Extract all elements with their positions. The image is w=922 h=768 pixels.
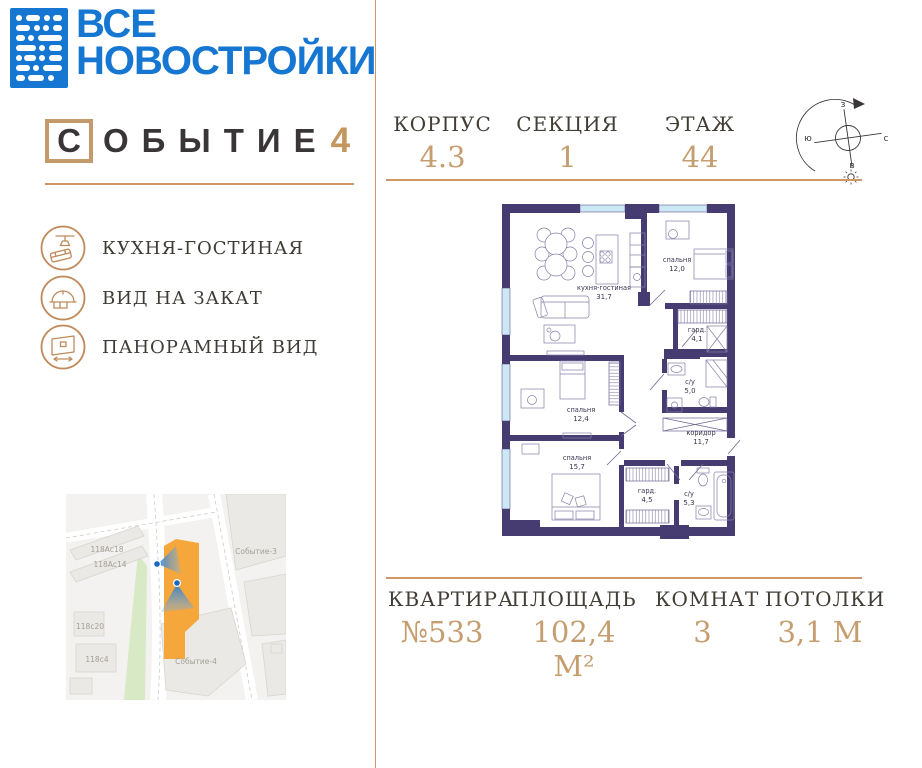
brand-logo-line1: ВСЕ: [76, 6, 376, 43]
room-area-kitchen-living: 31,7: [596, 293, 612, 301]
stat-area: ПЛОЩАДЬ 102,4 М²: [508, 587, 640, 683]
project-underline: [45, 183, 354, 185]
sunset-view-icon: [40, 275, 86, 321]
stat-korpus: КОРПУС 4.3: [390, 112, 495, 174]
compass-west: з: [841, 100, 846, 110]
kitchen-living-icon: [40, 225, 86, 271]
compass-east: в: [849, 161, 854, 171]
map-label-118s4: 118с4: [85, 655, 108, 664]
stat-etazh: ЭТАЖ 44: [650, 112, 750, 174]
room-name-bedroom-3: спальня: [563, 454, 591, 462]
project-first-letter: С: [57, 122, 81, 160]
compass-north: с: [884, 134, 889, 144]
stat-apartment-label: КВАРТИРА: [388, 587, 496, 611]
room-name-kitchen-living: кухня-гостиная: [577, 284, 631, 292]
room-area-wardrobe-1: 4,1: [691, 335, 702, 343]
stat-sekcia-label: СЕКЦИЯ: [515, 112, 620, 136]
stat-korpus-value: 4.3: [390, 140, 495, 174]
room-area-bedroom-3: 15,7: [569, 463, 585, 471]
feature-sunset-view-label: ВИД НА ЗАКАТ: [102, 288, 263, 309]
map-label-118s20: 118с20: [76, 622, 104, 631]
map-label-sobytie3: Событие-3: [235, 547, 277, 556]
brand-logo-text: ВСЕ НОВОСТРОЙКИ: [76, 6, 376, 80]
map-label-sobytie4: Событие-4: [175, 657, 217, 666]
room-area-bedroom-1: 12,0: [669, 265, 685, 273]
room-area-bathroom-2: 5,3: [683, 499, 694, 507]
footer-topline: [386, 577, 862, 579]
stat-ceiling-label: ПОТОЛКИ: [765, 587, 875, 611]
feature-panoramic-view: ПАНОРАМНЫЙ ВИД: [40, 324, 318, 370]
room-area-corridor: 11,7: [693, 438, 709, 446]
room-area-wardrobe-2: 4,5: [641, 496, 652, 504]
feature-panoramic-view-label: ПАНОРАМНЫЙ ВИД: [102, 337, 318, 358]
room-name-wardrobe-1: гард.: [688, 326, 706, 334]
stat-etazh-value: 44: [650, 140, 750, 174]
location-map: 118Ас18 118Ас14 118с20 118с4 Событие-3 С…: [66, 494, 286, 705]
stat-sekcia: СЕКЦИЯ 1: [515, 112, 620, 174]
vertical-divider: [375, 0, 376, 768]
map-marker-2: [174, 580, 181, 587]
stat-area-value: 102,4 М²: [508, 615, 640, 683]
compass-south: ю: [804, 134, 812, 144]
room-name-bedroom-2: спальня: [567, 406, 595, 414]
map-label-118as14: 118Ас14: [93, 560, 126, 569]
project-name-rest: ОБЫТИЕ: [103, 122, 329, 160]
compass: з с ю в: [795, 93, 895, 193]
room-name-bathroom-1: с/у: [685, 378, 695, 386]
feature-sunset-view: ВИД НА ЗАКАТ: [40, 275, 263, 321]
room-name-bathroom-2: с/у: [684, 490, 694, 498]
room-name-wardrobe-2: гард.: [638, 487, 656, 495]
brand-logo: [10, 8, 68, 93]
stat-korpus-label: КОРПУС: [390, 112, 495, 136]
panoramic-view-icon: [40, 324, 86, 370]
brand-logo-line2: НОВОСТРОЙКИ: [76, 43, 376, 80]
stat-sekcia-value: 1: [515, 140, 620, 174]
compass-arrowhead: [853, 98, 865, 109]
project-number: 4: [331, 121, 350, 161]
stat-etazh-label: ЭТАЖ: [650, 112, 750, 136]
stat-area-label: ПЛОЩАДЬ: [508, 587, 640, 611]
feature-kitchen-living-label: КУХНЯ-ГОСТИНАЯ: [102, 238, 304, 259]
listing-flyer: ВСЕ НОВОСТРОЙКИ С ОБЫТИЕ 4 КУХНЯ-ГОСТИНА…: [0, 0, 922, 768]
stat-rooms-value: 3: [655, 615, 750, 649]
project-logo: С ОБЫТИЕ 4: [45, 119, 350, 163]
room-area-bedroom-2: 12,4: [573, 415, 589, 423]
stat-ceiling-value: 3,1 М: [765, 615, 875, 649]
stat-rooms-label: КОМНАТ: [655, 587, 750, 611]
stat-rooms: КОМНАТ 3: [655, 587, 750, 649]
stat-apartment-value: №533: [388, 615, 496, 649]
stat-apartment: КВАРТИРА №533: [388, 587, 496, 649]
feature-kitchen-living: КУХНЯ-ГОСТИНАЯ: [40, 225, 304, 271]
brand-logo-icon: [10, 8, 68, 88]
map-marker-1: [154, 561, 161, 568]
room-name-bedroom-1: спальня: [663, 256, 691, 264]
stat-ceiling: ПОТОЛКИ 3,1 М: [765, 587, 875, 649]
header-underline: [386, 179, 862, 181]
project-first-letter-box: С: [45, 119, 93, 163]
room-name-corridor: коридор: [686, 429, 715, 437]
room-area-bathroom-1: 5,0: [684, 387, 695, 395]
map-label-118as18: 118Ас18: [90, 545, 123, 554]
floor-plan: кухня-гостиная 31,7 спальня 12,0 гард. 4…: [497, 202, 740, 552]
